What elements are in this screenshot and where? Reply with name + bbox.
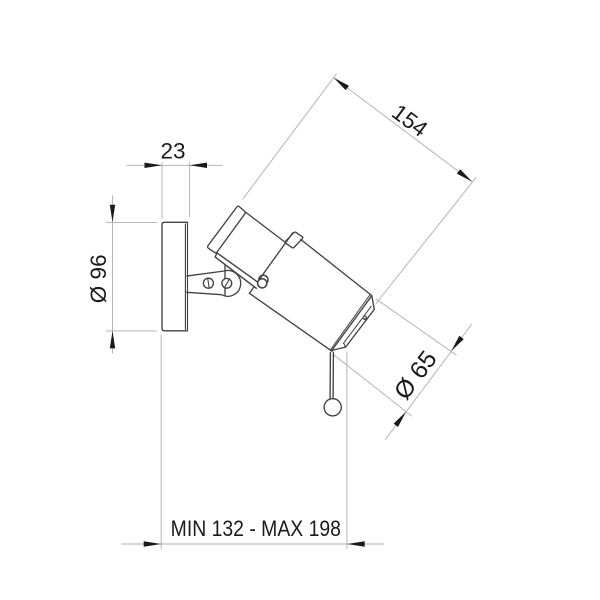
svg-text:Ø 96: Ø 96	[86, 254, 111, 303]
svg-text:MIN 132 - MAX 198: MIN 132 - MAX 198	[171, 517, 341, 542]
svg-text:23: 23	[160, 139, 185, 164]
